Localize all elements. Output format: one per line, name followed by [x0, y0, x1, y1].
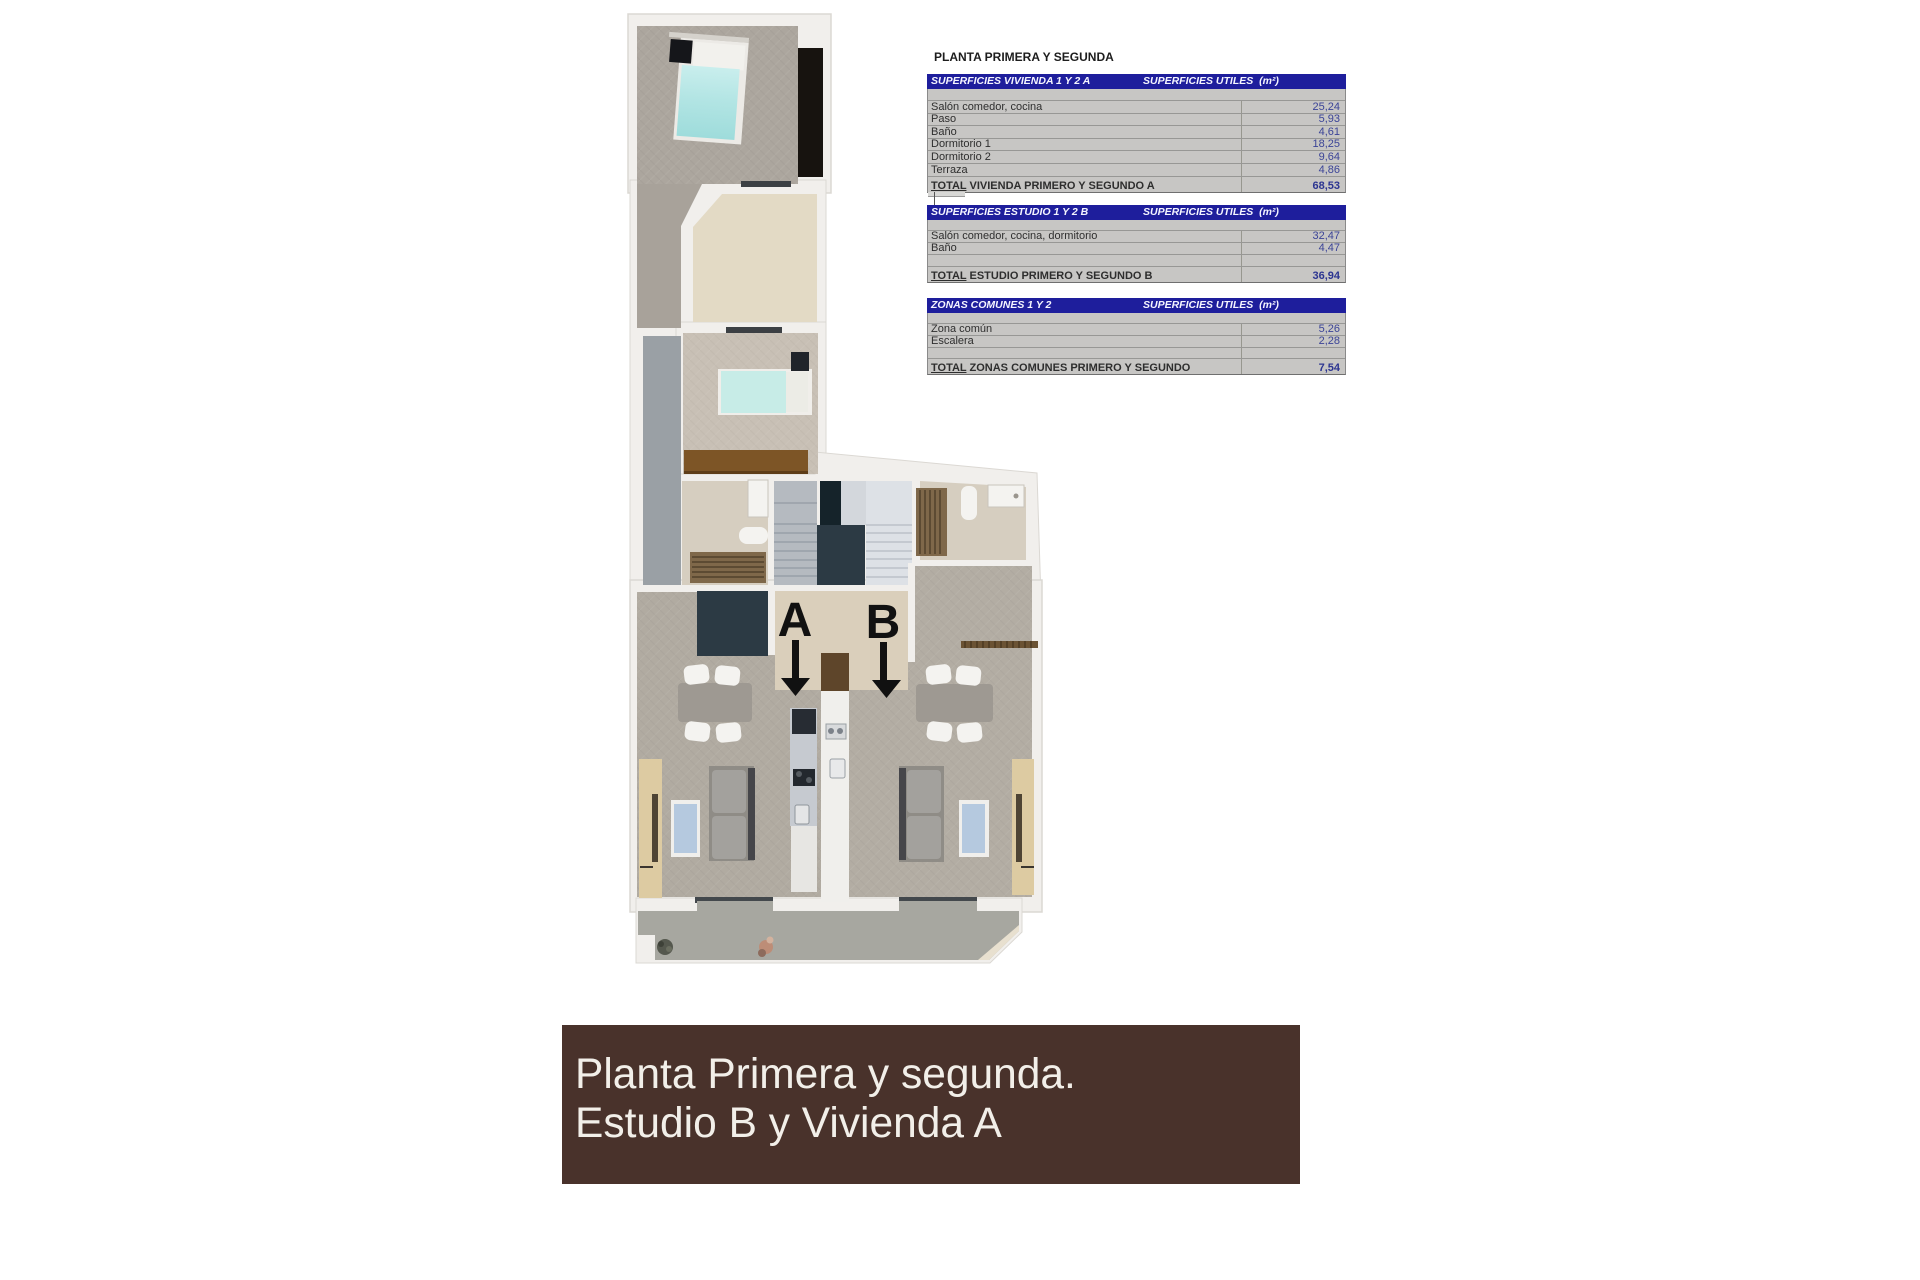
svg-text:A: A: [778, 594, 813, 647]
svg-text:B: B: [866, 596, 901, 649]
